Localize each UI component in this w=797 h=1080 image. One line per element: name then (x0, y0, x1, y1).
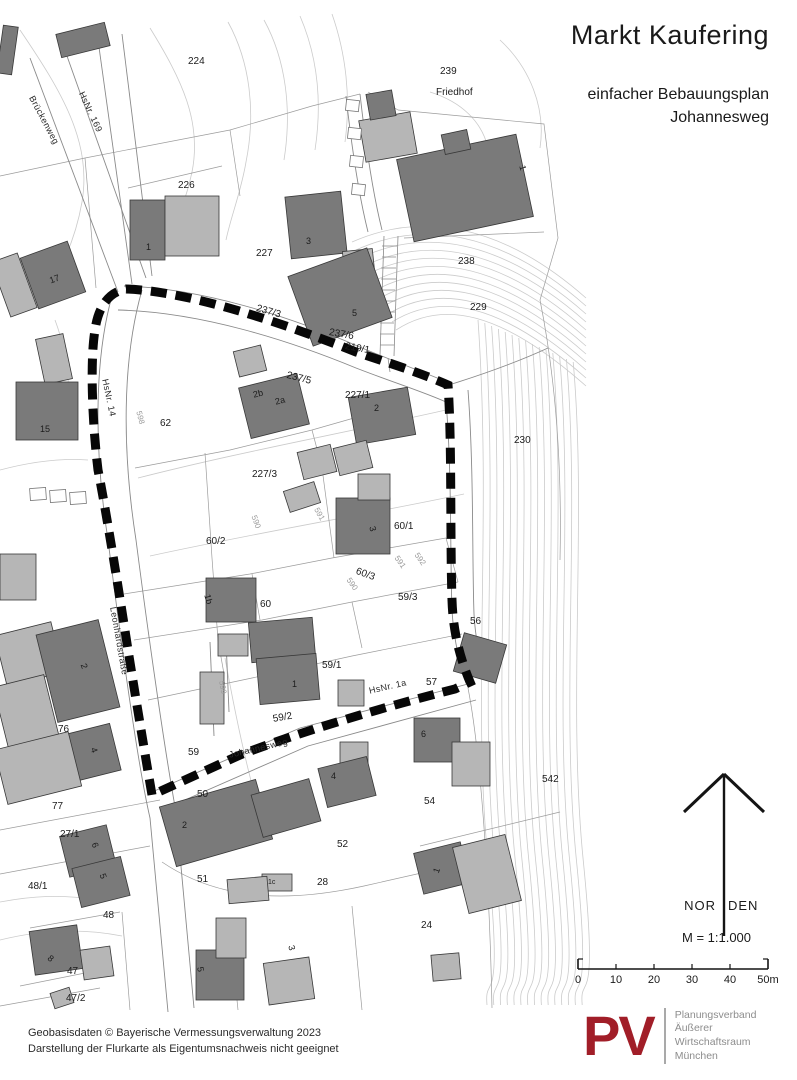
plan-subtitle-line2: Johannesweg (571, 106, 769, 129)
plan-subtitle-line1: einfacher Bebauungsplan (571, 83, 769, 106)
north-label-right: DEN (728, 898, 758, 913)
pv-logo-name-line4: München (675, 1050, 757, 1064)
attribution-line2: Darstellung der Flurkarte als Eigentumsn… (28, 1042, 339, 1058)
scale-bar: 01020304050m (568, 956, 783, 996)
north-indicator: NOR DEN M = 1:1.000 (658, 758, 782, 958)
building-footprint (452, 742, 490, 786)
plan-boundary-dashed (92, 289, 470, 795)
building-footprint (218, 634, 248, 656)
shed-footprint (349, 155, 363, 167)
pv-logo: PV Planungsverband Äußerer Wirtschaftsra… (583, 1008, 756, 1064)
building-footprint (0, 25, 18, 75)
shed-footprint (30, 487, 47, 500)
building-footprint (263, 957, 314, 1005)
building-footprint (227, 876, 269, 903)
pv-logo-name-line3: Wirtschaftsraum (675, 1036, 757, 1050)
building-footprint (318, 757, 376, 808)
plan-title: Markt Kaufering (571, 20, 769, 51)
building-footprint (159, 779, 272, 866)
building-footprint (431, 953, 461, 981)
building-footprint (297, 444, 337, 479)
logo-divider (664, 1008, 666, 1064)
shed-footprint (347, 127, 361, 139)
building-footprint (16, 382, 78, 440)
building-footprint (453, 834, 522, 913)
title-block: Markt Kaufering einfacher Bebauungsplan … (571, 20, 769, 129)
scale-tick-label: 0 (575, 974, 581, 986)
building-footprint (239, 374, 310, 439)
scale-tick-label: 10 (610, 974, 622, 986)
building-footprint (333, 440, 373, 475)
building-footprint (358, 474, 390, 500)
building-footprint (348, 387, 415, 445)
plan-sheet: 224239Friedhof226227238229230237/3237/62… (0, 0, 797, 1080)
building-footprint (336, 498, 390, 554)
building-footprint (251, 779, 321, 838)
building-footprint (130, 200, 165, 260)
building-footprint (338, 680, 364, 706)
attribution-line1: Geobasisdaten © Bayerische Vermessungsve… (28, 1026, 339, 1042)
building-footprint (50, 987, 74, 1008)
scale-tick-label: 40 (724, 974, 736, 986)
building-footprint (366, 90, 396, 120)
shed-footprint (345, 99, 359, 111)
scale-tick-label: 30 (686, 974, 698, 986)
building-footprint (200, 672, 224, 724)
north-arrow-icon (658, 758, 782, 958)
scale-tick-label: 50m (757, 974, 778, 986)
building-footprint (283, 482, 320, 513)
pv-logo-name-line1: Planungsverband (675, 1009, 757, 1023)
scale-text: M = 1:1.000 (682, 930, 751, 945)
pv-logo-name-line2: Äußerer (675, 1022, 757, 1036)
buildings-layer (0, 22, 533, 1008)
shed-footprint (351, 183, 365, 195)
building-footprint (359, 112, 418, 162)
building-footprint (29, 925, 83, 975)
building-footprint (56, 22, 110, 57)
shed-footprint (70, 491, 87, 504)
attribution: Geobasisdaten © Bayerische Vermessungsve… (28, 1026, 339, 1058)
building-footprint (36, 334, 73, 385)
building-footprint (165, 196, 219, 256)
pv-logo-name: Planungsverband Äußerer Wirtschaftsraum … (675, 1009, 757, 1064)
pv-logo-abbrev: PV (583, 1009, 654, 1062)
building-footprint (216, 918, 246, 958)
building-footprint (285, 191, 347, 259)
building-footprint (256, 653, 320, 704)
building-footprint (0, 554, 36, 600)
building-footprint (80, 946, 114, 980)
scale-tick-label: 20 (648, 974, 660, 986)
building-footprint (206, 578, 256, 622)
shed-footprint (50, 489, 67, 502)
north-label-left: NOR (684, 898, 716, 913)
scale-bar-graphic (568, 956, 783, 972)
building-footprint (233, 345, 266, 377)
